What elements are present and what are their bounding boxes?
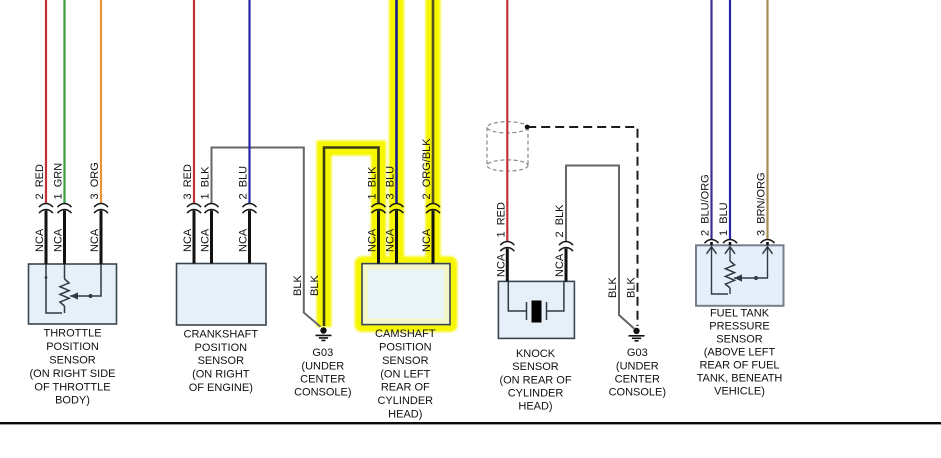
svg-text:SENSOR: SENSOR <box>198 355 245 367</box>
svg-text:HEAD): HEAD) <box>388 409 422 421</box>
svg-text:NCA: NCA <box>182 228 194 252</box>
svg-text:3 BLU: 3 BLU <box>385 166 397 200</box>
svg-text:CRANKSHAFT: CRANKSHAFT <box>184 328 259 340</box>
svg-text:2 BLU: 2 BLU <box>238 166 250 200</box>
svg-text:1 BLK: 1 BLK <box>367 166 379 200</box>
svg-text:(ON LEFT: (ON LEFT <box>380 368 430 380</box>
svg-text:BLK: BLK <box>309 275 321 296</box>
svg-text:NCA: NCA <box>200 228 212 252</box>
svg-text:NCA: NCA <box>367 228 379 252</box>
svg-text:CAMSHAFT: CAMSHAFT <box>375 328 436 340</box>
svg-text:G03: G03 <box>312 347 333 359</box>
svg-text:CYLINDER: CYLINDER <box>508 387 564 399</box>
svg-text:SENSOR: SENSOR <box>382 355 429 367</box>
svg-text:2 RED: 2 RED <box>34 164 46 200</box>
svg-text:OF THROTTLE: OF THROTTLE <box>34 381 110 393</box>
svg-text:VEHICLE): VEHICLE) <box>714 386 765 398</box>
svg-text:NCA: NCA <box>421 228 433 252</box>
svg-text:SENSOR: SENSOR <box>716 334 763 346</box>
svg-text:HEAD): HEAD) <box>518 401 552 413</box>
svg-text:REAR OF FUEL: REAR OF FUEL <box>699 360 779 372</box>
svg-text:PRESSURE: PRESSURE <box>709 321 770 333</box>
svg-text:NCA: NCA <box>34 228 46 252</box>
svg-text:NCA: NCA <box>554 253 566 277</box>
svg-text:BLK: BLK <box>607 277 619 298</box>
svg-text:2 BLK: 2 BLK <box>554 204 566 238</box>
svg-text:1 RED: 1 RED <box>495 202 507 238</box>
svg-text:OF ENGINE): OF ENGINE) <box>189 382 253 394</box>
svg-text:NCA: NCA <box>495 253 507 277</box>
svg-text:G03: G03 <box>627 347 648 359</box>
svg-text:(ON RIGHT SIDE: (ON RIGHT SIDE <box>30 368 116 380</box>
svg-text:NCA: NCA <box>53 228 65 252</box>
svg-text:BLK: BLK <box>292 275 304 296</box>
svg-text:3 RED: 3 RED <box>182 164 194 200</box>
svg-text:POSITION: POSITION <box>46 341 99 353</box>
svg-text:3 ORG: 3 ORG <box>89 162 101 199</box>
svg-text:KNOCK: KNOCK <box>516 348 556 360</box>
svg-text:REAR OF: REAR OF <box>381 382 430 394</box>
svg-text:SENSOR: SENSOR <box>512 361 559 373</box>
svg-text:POSITION: POSITION <box>195 342 248 354</box>
svg-text:1 BLK: 1 BLK <box>200 166 212 200</box>
svg-text:2 BLU/ORG: 2 BLU/ORG <box>700 174 712 236</box>
svg-text:CYLINDER: CYLINDER <box>377 395 433 407</box>
svg-text:CENTER: CENTER <box>300 373 345 385</box>
svg-text:SENSOR: SENSOR <box>49 355 96 367</box>
svg-text:(ABOVE LEFT: (ABOVE LEFT <box>704 347 776 359</box>
svg-text:POSITION: POSITION <box>379 342 432 354</box>
svg-text:CENTER: CENTER <box>615 373 660 385</box>
svg-text:(UNDER: (UNDER <box>301 360 344 372</box>
svg-text:2 ORG/BLK: 2 ORG/BLK <box>421 138 433 200</box>
svg-text:THROTTLE: THROTTLE <box>43 328 101 340</box>
svg-text:NCA: NCA <box>238 228 250 252</box>
svg-text:BLK: BLK <box>626 277 638 298</box>
svg-text:NCA: NCA <box>89 228 101 252</box>
svg-text:NCA: NCA <box>385 228 397 252</box>
svg-text:BODY): BODY) <box>55 395 90 407</box>
svg-text:(ON RIGHT: (ON RIGHT <box>192 369 250 381</box>
svg-text:(ON REAR OF: (ON REAR OF <box>499 374 571 386</box>
svg-text:CONSOLE): CONSOLE) <box>294 387 351 399</box>
svg-text:1 BLU: 1 BLU <box>718 202 730 236</box>
svg-text:TANK, BENEATH: TANK, BENEATH <box>697 373 783 385</box>
svg-text:1 GRN: 1 GRN <box>53 163 65 200</box>
svg-text:(UNDER: (UNDER <box>616 360 659 372</box>
svg-text:FUEL TANK: FUEL TANK <box>710 308 770 320</box>
svg-text:CONSOLE): CONSOLE) <box>609 387 666 399</box>
svg-text:3 BRN/ORG: 3 BRN/ORG <box>756 172 768 236</box>
